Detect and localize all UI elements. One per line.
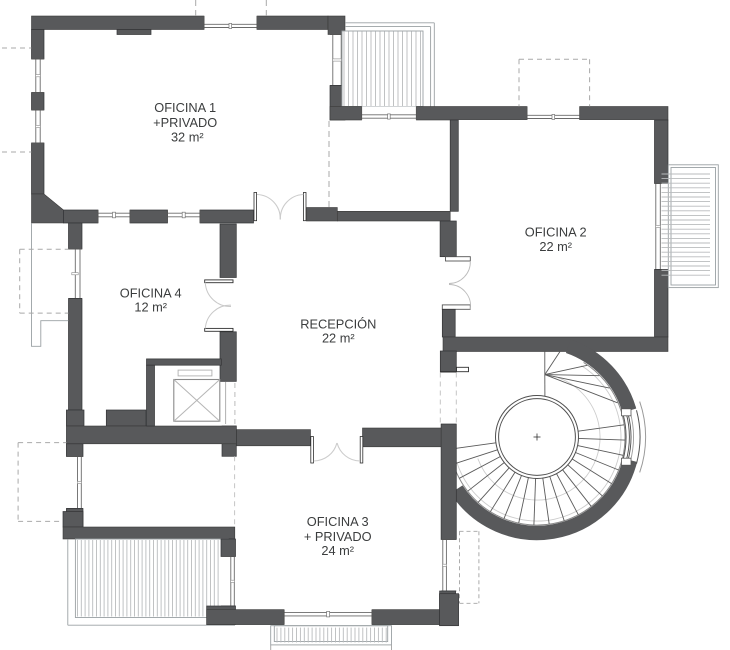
svg-text:24 m²: 24 m² <box>321 543 354 558</box>
svg-text:RECEPCIÓN: RECEPCIÓN <box>300 317 376 332</box>
svg-text:22 m²: 22 m² <box>539 239 572 254</box>
svg-text:OFICINA 1: OFICINA 1 <box>154 100 216 115</box>
svg-text:+ PRIVADO: + PRIVADO <box>304 529 372 544</box>
svg-text:+PRIVADO: +PRIVADO <box>153 115 217 130</box>
svg-text:OFICINA 4: OFICINA 4 <box>120 285 182 300</box>
svg-text:OFICINA 3: OFICINA 3 <box>307 514 369 529</box>
svg-text:12 m²: 12 m² <box>134 299 167 314</box>
svg-text:22 m²: 22 m² <box>322 330 355 345</box>
svg-text:OFICINA 2: OFICINA 2 <box>525 225 587 240</box>
svg-text:32 m²: 32 m² <box>171 130 204 145</box>
